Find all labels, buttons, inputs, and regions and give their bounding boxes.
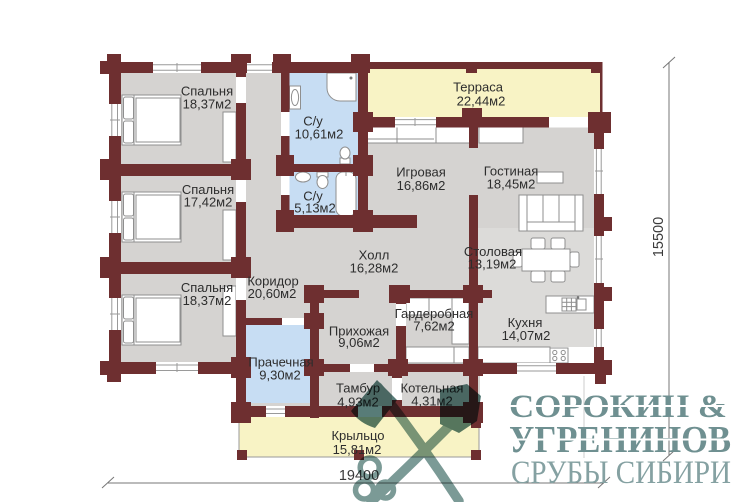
svg-text:20,60м2: 20,60м2 [248,286,297,301]
svg-text:15,81м2: 15,81м2 [333,442,382,457]
svg-text:16,28м2: 16,28м2 [350,261,399,276]
svg-text:Терраса: Терраса [453,80,504,95]
svg-text:5,13м2: 5,13м2 [294,201,335,216]
svg-text:10,61м2: 10,61м2 [295,127,344,142]
svg-text:14,07м2: 14,07м2 [502,328,551,343]
svg-text:18,37м2: 18,37м2 [183,293,232,308]
svg-text:16,86м2: 16,86м2 [397,178,446,193]
svg-text:7,62м2: 7,62м2 [413,319,454,334]
svg-text:22,44м2: 22,44м2 [457,94,506,109]
svg-text:9,06м2: 9,06м2 [338,335,379,350]
svg-text:Крыльцо: Крыльцо [331,428,384,443]
svg-text:9,30м2: 9,30м2 [259,368,300,383]
svg-text:18,45м2: 18,45м2 [487,177,536,192]
svg-text:СРУБЫ СИБИРИ: СРУБЫ СИБИРИ [511,455,731,491]
svg-text:17,42м2: 17,42м2 [184,195,233,210]
svg-text:13,19м2: 13,19м2 [468,257,517,272]
svg-text:18,37м2: 18,37м2 [183,97,232,112]
svg-text:15500: 15500 [651,217,667,257]
